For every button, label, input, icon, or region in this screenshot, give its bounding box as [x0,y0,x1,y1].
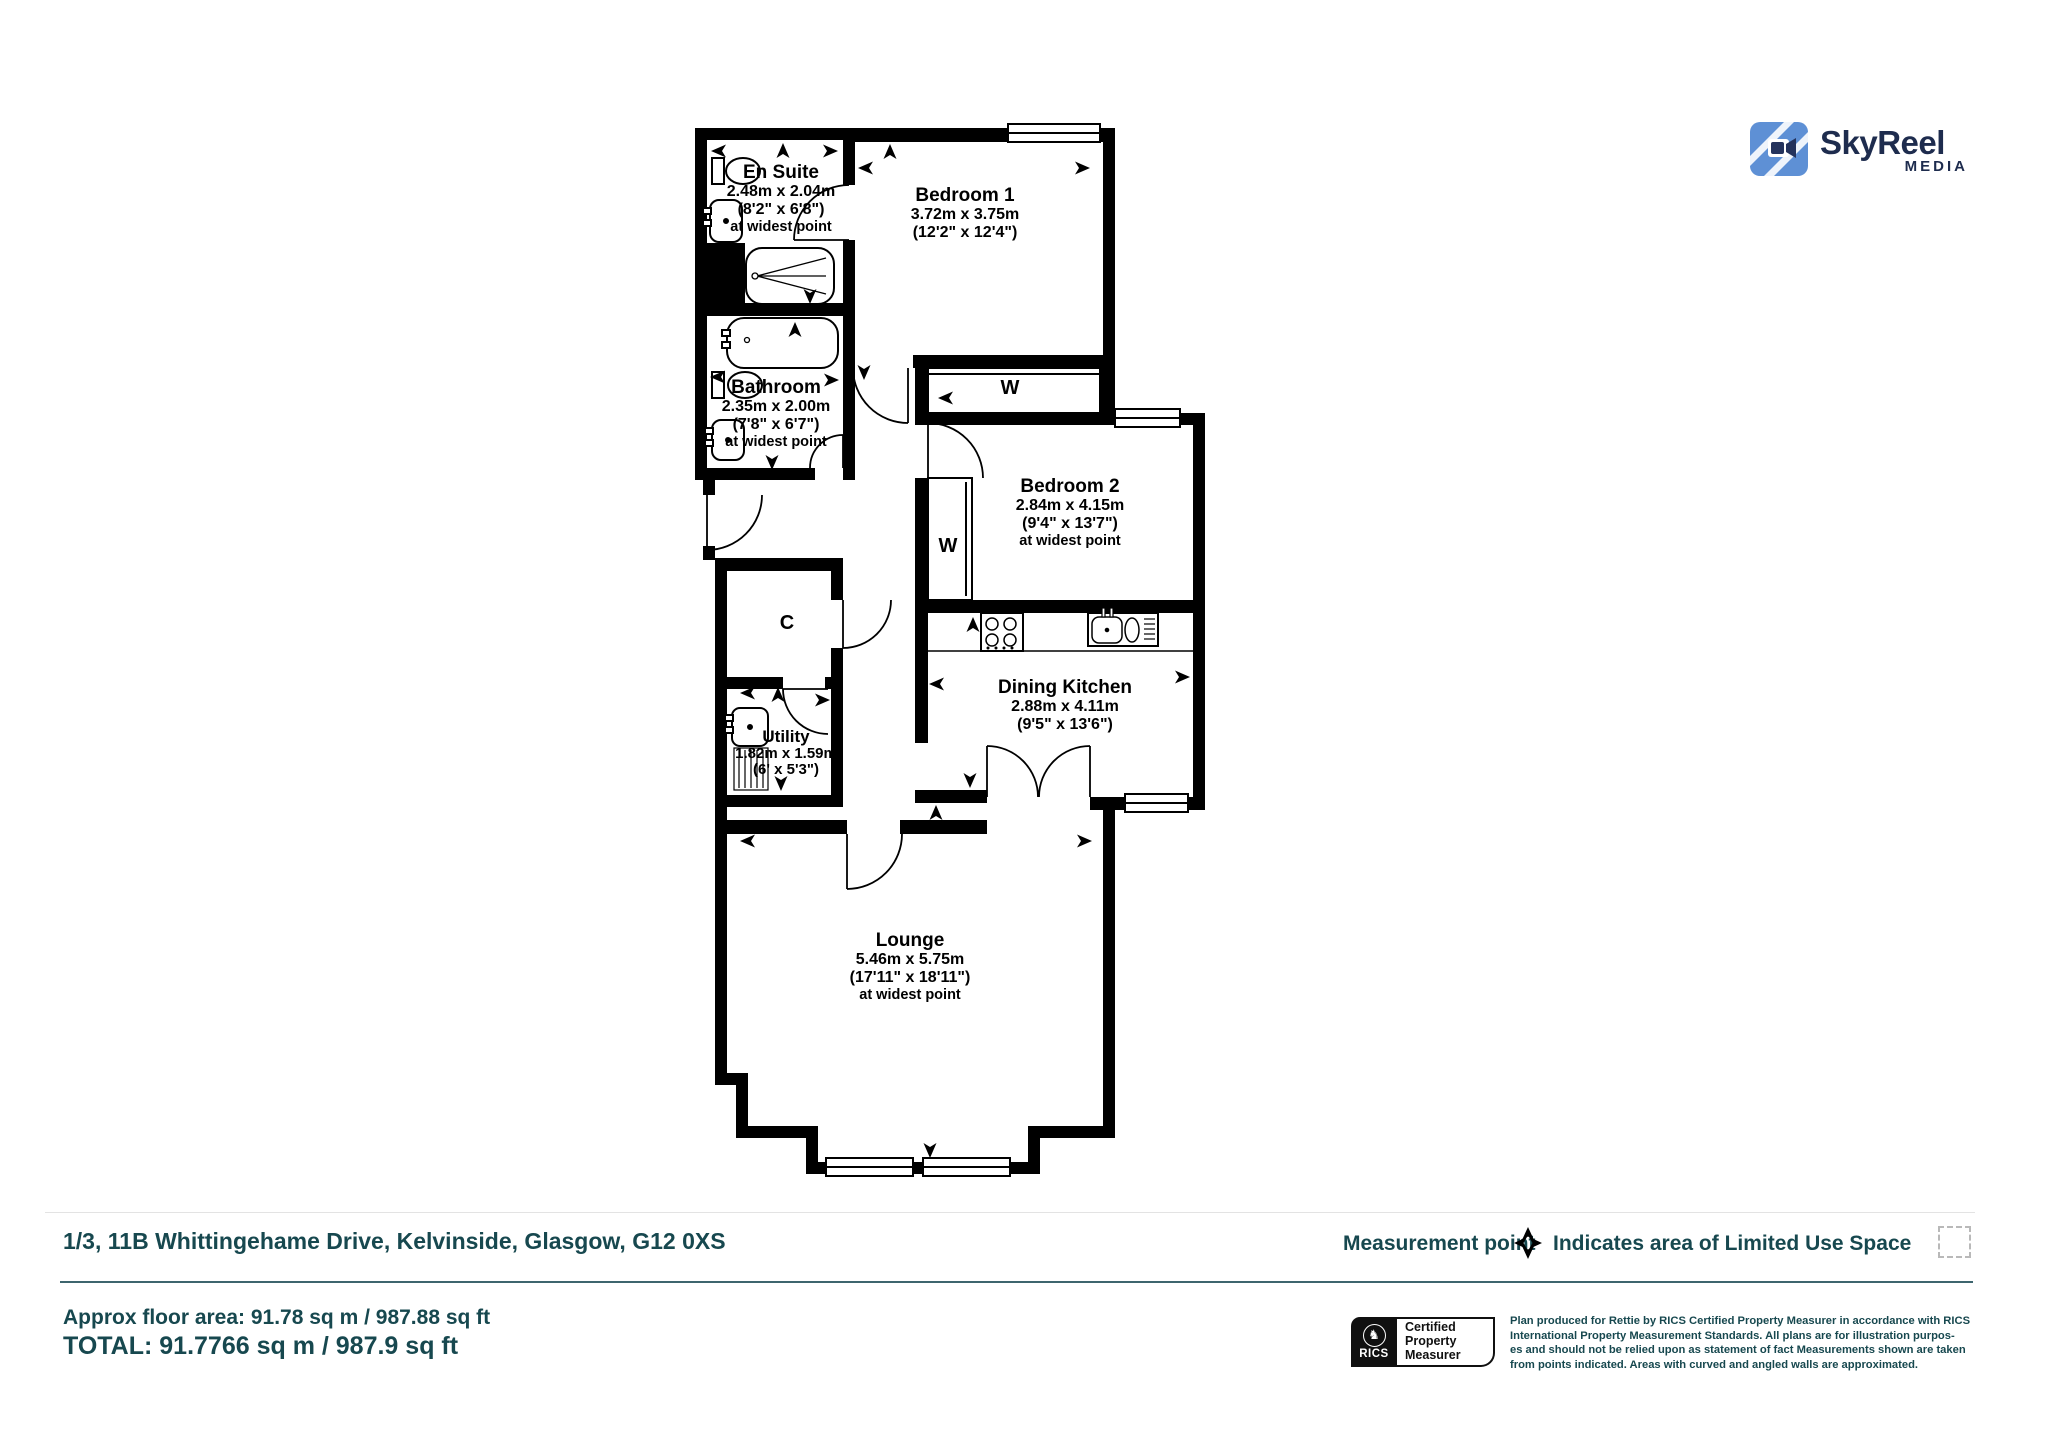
room-label-cupboard: C [780,613,794,633]
logo-brand-name: SkyReel [1820,124,1945,162]
rics-cert-label: Certified Property Measurer [1397,1317,1495,1367]
door-french-right [1039,746,1090,797]
room-size-metric: 2.35m x 2.00m [722,398,831,416]
floorplan-page: En Suite 2.48m x 2.04m (8'2" x 6'8") at … [0,0,2048,1448]
room-name: Dining Kitchen [998,678,1132,698]
door-bedroom2 [928,423,983,478]
room-size-metric: 2.48m x 2.04m [727,183,836,201]
room-name: Bathroom [722,378,831,398]
door-french-left [987,746,1038,797]
disclaimer-text: Plan produced for Rettie by RICS Certifi… [1510,1314,1970,1372]
room-note: at widest point [850,987,971,1004]
window-kitchen [1125,794,1188,812]
four-way-arrow-icon [1513,1226,1543,1260]
rics-lion-icon: ♞ [1363,1324,1386,1347]
room-note: at widest point [722,434,831,451]
property-address: 1/3, 11B Whittingehame Drive, Kelvinside… [63,1228,726,1255]
legend-limited-use-label: Indicates area of Limited Use Space [1553,1232,1911,1256]
disclaimer-line: International Property Measurement Stand… [1510,1329,1970,1344]
hob-icon [981,613,1023,651]
door-lounge [847,834,902,889]
room-label-bedroom1: Bedroom 1 3.72m x 3.75m (12'2" x 12'4") [911,186,1020,242]
rics-cert-line: Certified [1405,1320,1493,1334]
room-name: Utility [735,728,837,746]
room-name: W [939,536,958,556]
footer-divider [60,1281,1973,1283]
room-label-lounge: Lounge 5.46m x 5.75m (17'11" x 18'11") a… [850,931,971,1004]
room-name: Lounge [850,931,971,951]
total-floor-area: TOTAL: 91.7766 sq m / 987.9 sq ft [63,1332,458,1361]
room-size-imperial: (9'5" x 13'6") [998,716,1132,734]
shower-bath-icon [746,248,834,304]
room-note: at widest point [1016,533,1125,550]
room-label-wardrobe-bedroom2: W [939,536,958,556]
kitchen-sink-icon [1088,608,1158,646]
room-size-imperial: (8'2" x 6'8") [727,201,836,219]
skyreel-camera-icon [1750,122,1808,176]
room-size-imperial: (7'8" x 6'7") [722,416,831,434]
window-bedroom1 [1008,124,1100,142]
room-name: Bedroom 1 [911,186,1020,206]
room-size-imperial: (9'4" x 13'7") [1016,515,1125,533]
approx-floor-area: Approx floor area: 91.78 sq m / 987.88 s… [63,1306,490,1330]
footer-top-divider [45,1212,1975,1213]
room-label-wardrobe-top: W [1001,378,1020,398]
disclaimer-line: Plan produced for Rettie by RICS Certifi… [1510,1314,1970,1329]
room-label-utility: Utility 1.82m x 1.59m (6' x 5'3") [735,728,837,778]
skyreel-logo: SkyReel MEDIA [1750,122,1980,178]
rics-cert-line: Measurer [1405,1348,1493,1362]
room-name: C [780,613,794,633]
window-bedroom2 [1115,409,1180,427]
room-name: Bedroom 2 [1016,477,1125,497]
rics-logo: ♞ RICS [1351,1317,1397,1367]
room-size-imperial: (12'2" x 12'4") [911,224,1020,242]
rics-cert-line: Property [1405,1334,1493,1348]
room-size-metric: 1.82m x 1.59m [735,746,837,762]
room-label-dining-kitchen: Dining Kitchen 2.88m x 4.11m (9'5" x 13'… [998,678,1132,734]
legend-measurement-point-label: Measurement point [1343,1232,1536,1256]
room-name: En Suite [727,163,836,183]
rics-brand: RICS [1359,1348,1388,1360]
room-size-imperial: (6' x 5'3") [735,762,837,778]
window-lounge-bay-right [923,1158,1010,1176]
door-bedroom1 [853,368,908,423]
rics-certified-badge: ♞ RICS Certified Property Measurer [1351,1317,1495,1367]
room-size-imperial: (17'11" x 18'11") [850,969,971,987]
disclaimer-line: es and should not be relied upon as stat… [1510,1343,1970,1358]
room-size-metric: 2.88m x 4.11m [998,698,1132,716]
room-name: W [1001,378,1020,398]
room-size-metric: 2.84m x 4.15m [1016,497,1125,515]
room-label-ensuite: En Suite 2.48m x 2.04m (8'2" x 6'8") at … [727,163,836,236]
door-cupboard [843,600,891,648]
room-note: at widest point [727,219,836,236]
door-entrance [707,495,762,550]
room-label-bedroom2: Bedroom 2 2.84m x 4.15m (9'4" x 13'7") a… [1016,477,1125,550]
room-size-metric: 5.46m x 5.75m [850,951,971,969]
dashed-box-icon [1938,1226,1971,1258]
disclaimer-line: from points indicated. Areas with curved… [1510,1358,1970,1373]
room-label-bathroom: Bathroom 2.35m x 2.00m (7'8" x 6'7") at … [722,378,831,451]
room-size-metric: 3.72m x 3.75m [911,206,1020,224]
logo-tagline: MEDIA [1820,158,1968,175]
bath-icon [722,318,838,368]
window-lounge-bay-left [826,1158,913,1176]
